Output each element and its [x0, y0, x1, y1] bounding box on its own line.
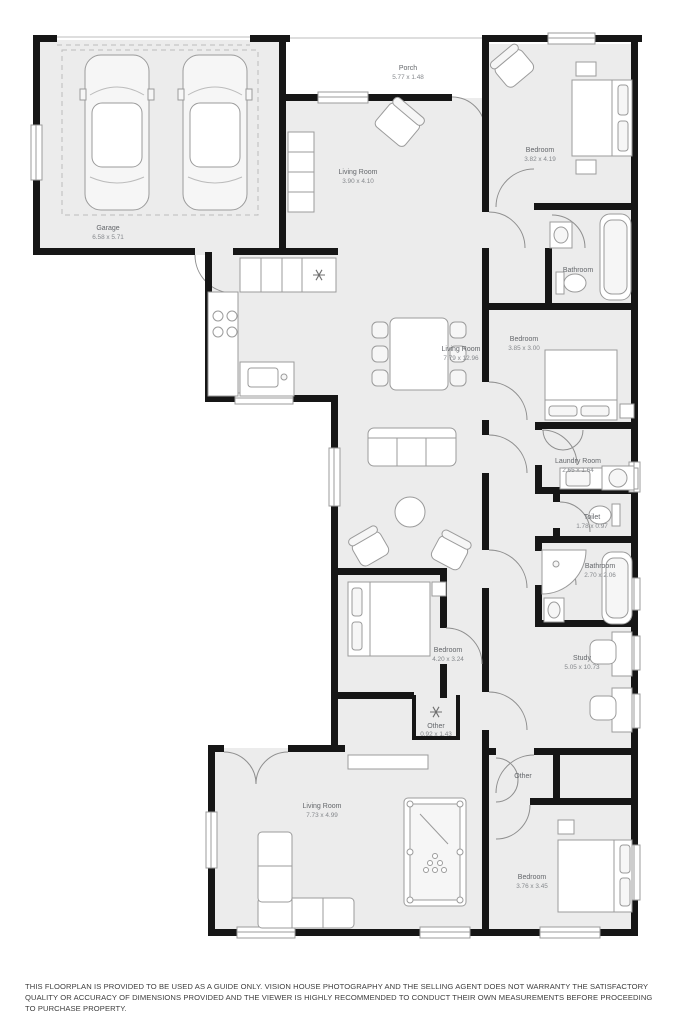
room-label-closet-hall: Other: [514, 773, 532, 780]
room-dims-living-main: 7.79 x 12.96: [443, 355, 479, 362]
room-dims-porch: 5.77 x 1.48: [392, 74, 424, 81]
room-label-living-bottom: Living Room: [303, 803, 342, 810]
room-label-bedroom-right: Bedroom: [510, 336, 539, 343]
floorplan-page: Porch 5.77 x 1.48 Garage 6.58 x 5.71 Liv…: [0, 0, 683, 1024]
room-dims-bedroom-bottom: 3.76 x 3.45: [516, 883, 548, 890]
room-dims-toilet: 1.78 x 0.97: [576, 523, 608, 530]
bathroom-sink-icon: [550, 222, 572, 248]
garage-floor: [36, 40, 286, 255]
room-label-living-top: Living Room: [339, 169, 378, 176]
dining-table-icon: [372, 318, 466, 390]
room-label-living-main: Living Room: [442, 346, 481, 353]
room-label-toilet: Toilet: [584, 514, 600, 521]
bathroom-sink-icon: [544, 598, 564, 622]
car-icon: [80, 55, 154, 210]
room-dims-laundry: 2.65 x 1.64: [562, 467, 594, 474]
room-label-laundry: Laundry Room: [555, 458, 601, 465]
room-dims-closet-ac: 0.92 x 1.43: [420, 731, 452, 738]
tv-cabinet-icon: [348, 755, 428, 769]
room-label-garage: Garage: [96, 225, 119, 232]
room-dims-bedroom-top-right: 3.82 x 4.19: [524, 156, 556, 163]
room-dims-garage: 6.58 x 5.71: [92, 234, 124, 241]
coffee-table-icon: [395, 497, 425, 527]
room-label-bedroom-bottom: Bedroom: [518, 874, 547, 881]
room-label-porch: Porch: [399, 65, 417, 72]
room-label-closet-ac: Other: [427, 723, 445, 730]
room-label-bathroom-top: Bathroom: [563, 267, 594, 274]
bookshelf-icon: [288, 132, 314, 212]
room-dims-bedroom-mid-left: 4.20 x 3.24: [432, 656, 464, 663]
room-dims-living-top: 3.90 x 4.10: [342, 178, 374, 185]
room-dims-living-bottom: 7.73 x 4.99: [306, 812, 338, 819]
footer-disclaimer: THIS FLOORPLAN IS PROVIDED TO BE USED AS…: [25, 981, 665, 1014]
floorplan-svg: Porch 5.77 x 1.48 Garage 6.58 x 5.71 Liv…: [0, 0, 683, 1024]
bathtub-icon: [600, 214, 631, 300]
room-label-study: Study: [573, 655, 591, 662]
office-chair-icon: [590, 696, 616, 720]
office-chair-icon: [590, 640, 616, 664]
room-label-bedroom-mid-left: Bedroom: [434, 647, 463, 654]
room-dims-bathroom-mid: 2.70 x 2.06: [584, 572, 616, 579]
room-dims-study: 5.05 x 10.73: [564, 664, 600, 671]
room-label-bathroom-mid: Bathroom: [585, 563, 616, 570]
sofa-icon: [368, 428, 456, 466]
pool-table-icon: [404, 798, 466, 906]
room-label-bedroom-top-right: Bedroom: [526, 147, 555, 154]
car-icon: [178, 55, 252, 210]
room-dims-bedroom-right: 3.85 x 3.00: [508, 345, 540, 352]
toilet-icon: [556, 272, 586, 294]
